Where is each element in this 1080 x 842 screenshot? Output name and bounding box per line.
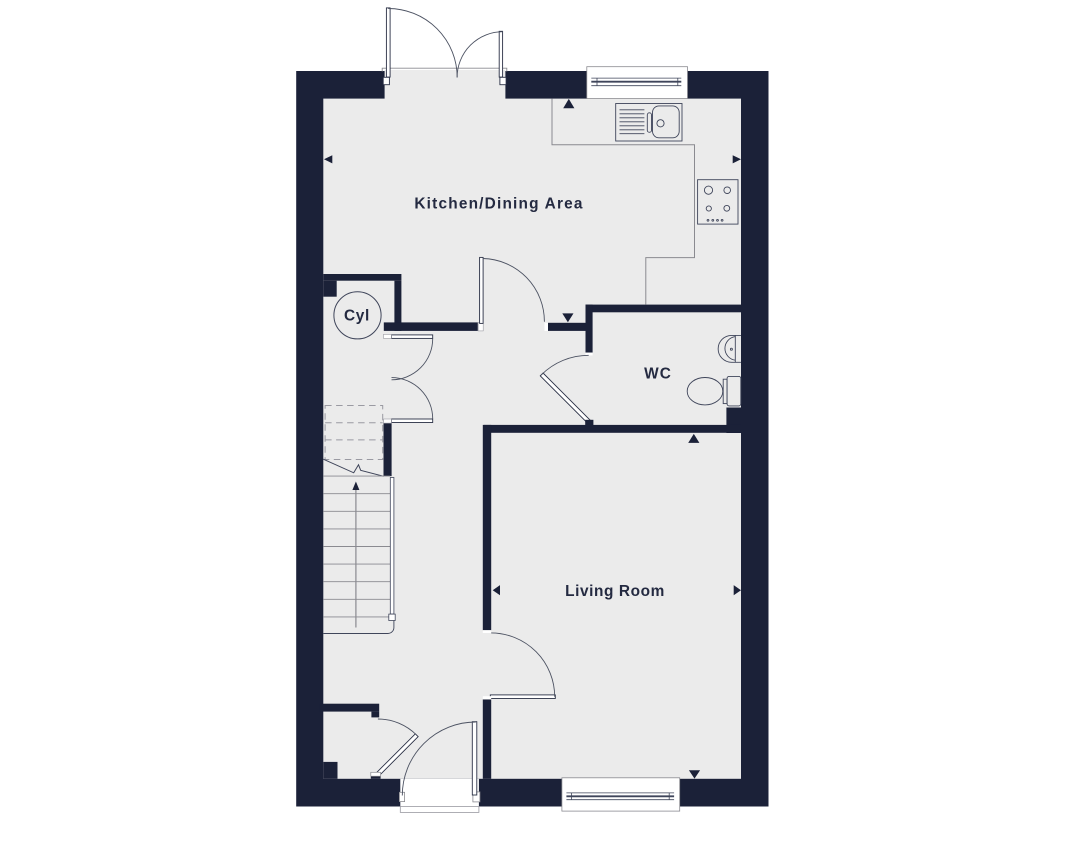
- svg-text:Kitchen/Dining Area: Kitchen/Dining Area: [414, 195, 583, 212]
- svg-text:Living Room: Living Room: [565, 583, 665, 600]
- svg-text:WC: WC: [644, 366, 672, 383]
- svg-text:Cyl: Cyl: [344, 308, 370, 325]
